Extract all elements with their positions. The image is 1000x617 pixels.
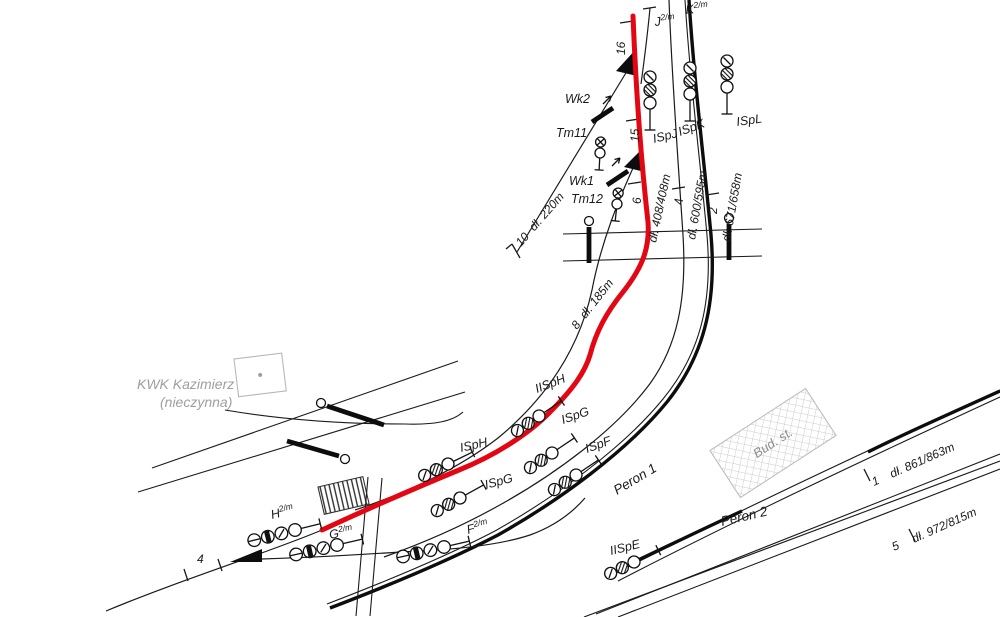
crossing-road-edge-b bbox=[563, 256, 762, 261]
branch-gate-lower-pivot bbox=[341, 455, 350, 464]
railway-schematic-page: Bud. st. bbox=[0, 0, 1000, 617]
signal-h bbox=[247, 518, 322, 548]
track-8-label: 8dł. 185m bbox=[568, 276, 616, 332]
track-end-h-label: H2/m bbox=[269, 501, 295, 522]
signal-tm12 bbox=[610, 188, 623, 222]
signal-ispj-label: ISpJ bbox=[651, 126, 679, 146]
branch-gate-upper-pivot bbox=[317, 399, 326, 408]
signal-ispj bbox=[644, 71, 656, 130]
signal-ispf bbox=[546, 455, 602, 498]
switch-triangle-mid bbox=[624, 150, 641, 171]
track-1-platform-edge-a bbox=[868, 391, 1000, 452]
track-4b-joint-tick-1 bbox=[184, 569, 188, 581]
site-status-label: (nieczynna) bbox=[160, 394, 232, 410]
track-2-number: 2 bbox=[706, 207, 720, 215]
platform-1-label: Peron 1 bbox=[611, 460, 659, 497]
tracks bbox=[106, 0, 1000, 617]
crossing-gate-left-pivot bbox=[585, 217, 594, 226]
track-4b-joint-tick-2 bbox=[218, 559, 222, 571]
road-vertical-edge-b bbox=[370, 478, 382, 616]
track-1-length: dł. 861/863m bbox=[888, 440, 957, 481]
railway-schematic: Bud. st. bbox=[0, 0, 1000, 617]
track-6-number: 6 bbox=[630, 197, 644, 204]
signal-f bbox=[396, 535, 471, 564]
platform-2-label: Peron 2 bbox=[719, 504, 769, 529]
signal-isph-label: ISpH bbox=[459, 435, 490, 455]
site-name-label: KWK Kazimierz bbox=[137, 376, 234, 392]
track-end-j-label: J2/m bbox=[653, 11, 676, 29]
switch-triangle-bottom bbox=[230, 549, 262, 562]
track-1-number: 1 bbox=[870, 473, 882, 489]
track-10-label: 10dł. 220m bbox=[513, 190, 567, 249]
station-building: Bud. st. bbox=[710, 388, 836, 497]
derailer-wk1-bar bbox=[607, 171, 628, 185]
track-4b-number: 4 bbox=[197, 552, 204, 566]
loading-ramp bbox=[318, 477, 369, 515]
closed-mine-building bbox=[234, 353, 286, 397]
derailer-wk2-label: Wk2 bbox=[565, 92, 590, 106]
route-overlay bbox=[322, 16, 648, 530]
signal-ispg-upper-label: ISpG bbox=[559, 404, 591, 427]
track-6-tick bbox=[628, 182, 641, 184]
signal-ispg-upper bbox=[522, 433, 578, 476]
track-4-tick bbox=[672, 187, 685, 189]
labels: J2/m K2/m H2/m G2/m F2/m 16 15 6 4 2 4 1… bbox=[137, 0, 979, 566]
track-1-tick bbox=[864, 469, 870, 481]
track-2-length: dł. 671/658m bbox=[719, 172, 745, 243]
signal-ispg-lower bbox=[429, 480, 486, 519]
track-5-length: dł. 972/815m bbox=[910, 505, 979, 546]
signal-tm11-label: Tm11 bbox=[556, 126, 587, 140]
derailer-wk2-bar bbox=[592, 108, 613, 122]
derailer-wk1-arrow bbox=[612, 158, 620, 166]
signal-ispl bbox=[721, 55, 733, 114]
track-16-number: 16 bbox=[614, 41, 628, 55]
signal-iispe-label: IISpE bbox=[608, 537, 642, 558]
derailer-wk1-label: Wk1 bbox=[569, 174, 594, 188]
track-end-k-label: K2/m bbox=[685, 0, 709, 17]
track-6-length: dł. 408/408m bbox=[645, 173, 673, 244]
track-4-number: 4 bbox=[672, 198, 686, 205]
signal-g bbox=[289, 533, 364, 562]
signal-tm11 bbox=[594, 137, 606, 170]
signal-iisph-label: IISpH bbox=[533, 371, 568, 396]
track-5-rail-b bbox=[584, 461, 1000, 617]
track-end-f-label: F2/m bbox=[465, 516, 490, 537]
signal-ispg-lower-label: ISpG bbox=[483, 471, 514, 492]
derailer-wk2-arrow bbox=[603, 96, 611, 104]
signal-ispl-label: ISpL bbox=[735, 112, 762, 129]
track-5-number: 5 bbox=[890, 538, 902, 554]
track-15-number: 15 bbox=[628, 128, 642, 142]
signal-tm12-label: Tm12 bbox=[571, 192, 603, 206]
branch-crossing-gates bbox=[287, 399, 384, 464]
branch-gate-lower-arm bbox=[287, 441, 339, 456]
